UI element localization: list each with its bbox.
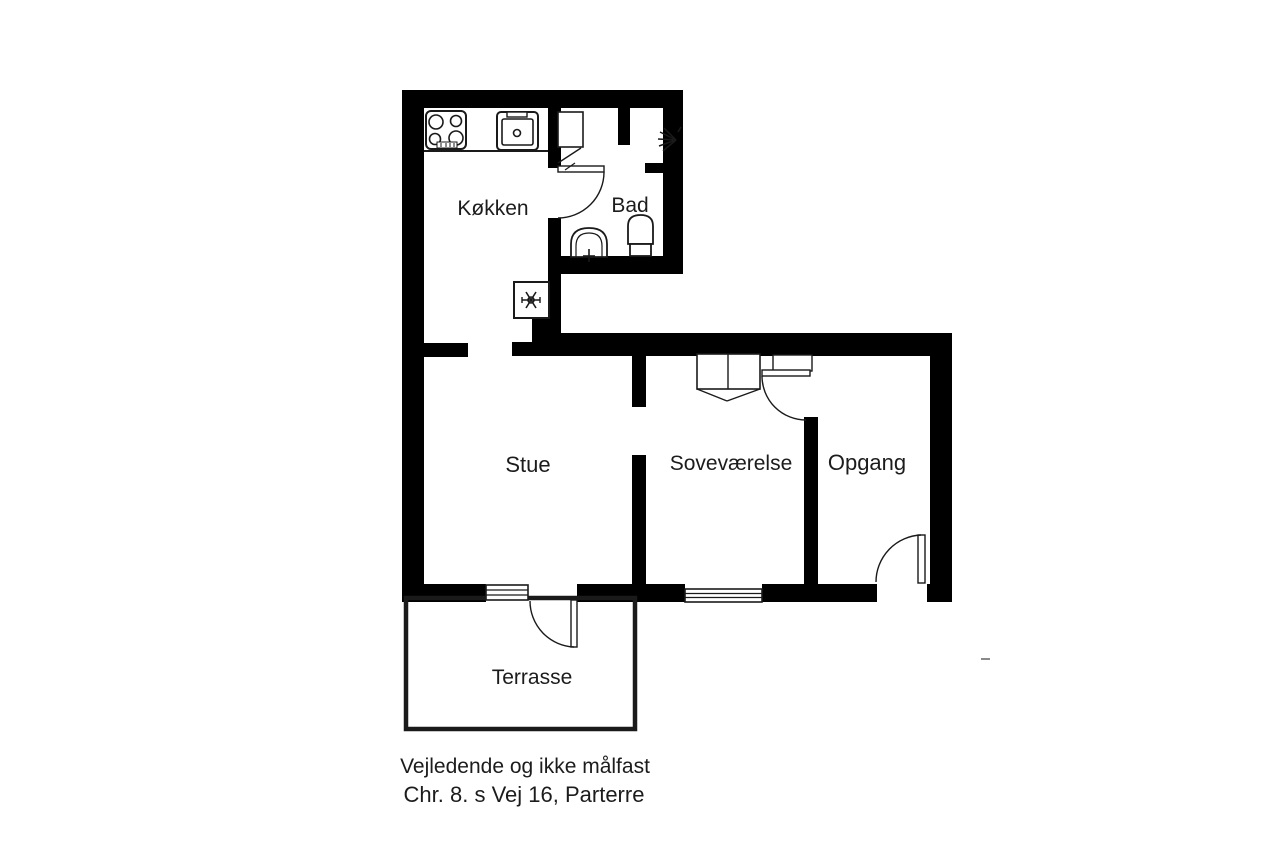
- toilet-bowl: [628, 215, 653, 244]
- door-kokken-bad-arc: [558, 172, 604, 218]
- footer-disclaimer: Vejledende og ikke målfast: [400, 755, 650, 778]
- terrasse-border: [406, 598, 635, 729]
- room-label-bad: Bad: [611, 194, 648, 217]
- room-label-kokken: Køkken: [457, 197, 528, 220]
- door-kokken-bad: [558, 166, 604, 218]
- door-opgang-leaf: [918, 535, 925, 583]
- boiler-fan-icon: [514, 282, 549, 318]
- window-sove-frame: [685, 589, 762, 602]
- room-label-stue: Stue: [505, 452, 550, 477]
- wall-right: [930, 333, 952, 602]
- wall-bad-right: [663, 108, 683, 274]
- door-sove-niche: [773, 355, 812, 371]
- stove-icon: [426, 111, 466, 149]
- wall-long-left-ext: [512, 342, 534, 356]
- floorplan-drawing: Køkken Bad Stue Soveværelse Opgang Terra…: [0, 0, 1280, 853]
- room-label-opgang: Opgang: [828, 450, 906, 475]
- door-opgang-arc: [876, 535, 921, 582]
- wall-kokken-bad-lower: [548, 218, 561, 341]
- wardrobe-arrow-right: [727, 389, 760, 401]
- wall-stue-sove-upper: [632, 356, 646, 407]
- bath-closet-door-swing: [558, 148, 581, 163]
- footer-address: Chr. 8. s Vej 16, Parterre: [404, 782, 645, 807]
- wall-bad-window-stub: [618, 108, 630, 145]
- kitchen-sink-faucet: [507, 112, 527, 117]
- stove-burner-2: [451, 116, 462, 127]
- walls: [402, 90, 952, 602]
- bath-closet-box: [558, 112, 583, 147]
- window-terrasse-frame: [486, 585, 528, 600]
- shower-ray-2: [658, 139, 676, 140]
- floorplan-page: Køkken Bad Stue Soveværelse Opgang Terra…: [0, 0, 1280, 853]
- toilet-icon: [628, 215, 653, 256]
- room-label-terrasse: Terrasse: [492, 666, 573, 689]
- wardrobe-icon: [697, 354, 760, 401]
- wall-bottom-d: [927, 584, 952, 602]
- kitchen-sink-icon: [497, 112, 538, 150]
- room-label-sovevaerelse: Soveværelse: [670, 452, 793, 475]
- terrasse-outline: [406, 598, 635, 729]
- wall-left: [402, 90, 424, 602]
- wall-bottom-c: [762, 584, 877, 602]
- wall-top: [402, 90, 683, 108]
- footer-annotations: Vejledende og ikke målfast Chr. 8. s Vej…: [400, 755, 650, 807]
- toilet-base: [630, 244, 651, 256]
- door-sove-arc: [762, 376, 806, 420]
- wall-long-horizontal: [532, 333, 952, 356]
- door-terrasse-arc: [530, 601, 574, 647]
- door-sove-leaf: [762, 370, 810, 376]
- wall-stue-sove-lower: [632, 455, 646, 602]
- stove-burner-1: [429, 115, 443, 129]
- wall-sove-opgang: [804, 417, 818, 602]
- bath-closet-icon: [558, 112, 583, 170]
- door-kokken-bad-leaf: [558, 166, 604, 172]
- door-terrasse-leaf: [571, 600, 577, 647]
- door-opgang: [876, 535, 925, 583]
- door-sovevaerelse: [762, 355, 812, 420]
- wall-bad-bottom: [548, 256, 683, 274]
- bath-sink-icon: [571, 228, 607, 262]
- window-terrasse: [486, 585, 528, 600]
- door-terrasse: [530, 600, 577, 647]
- kitchen-sink-drain: [514, 130, 521, 137]
- window-sovevaerelse: [685, 589, 762, 602]
- wall-kokken-stue-stub: [424, 343, 468, 357]
- wall-shower-stub: [645, 163, 683, 173]
- wardrobe-arrow-left: [697, 389, 727, 401]
